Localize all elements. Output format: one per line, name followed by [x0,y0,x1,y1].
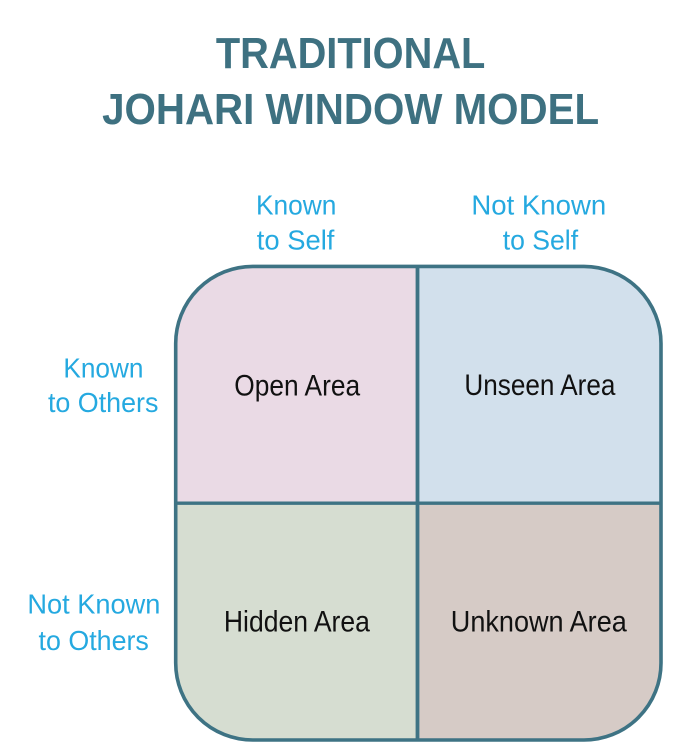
svg-text:JOHARI WINDOW MODEL: JOHARI WINDOW MODEL [102,86,599,134]
svg-text:Not Known: Not Known [27,589,160,620]
svg-text:Unknown Area: Unknown Area [451,606,627,639]
svg-text:Known: Known [63,353,143,384]
svg-text:TRADITIONAL: TRADITIONAL [216,30,486,78]
svg-text:Open Area: Open Area [234,370,360,403]
svg-text:Known: Known [256,190,337,221]
svg-text:Not Known: Not Known [471,190,606,221]
svg-text:to Others: to Others [48,387,159,418]
svg-text:to Self: to Self [257,225,335,256]
svg-text:to Self: to Self [503,225,579,256]
svg-text:to Others: to Others [39,625,149,656]
svg-text:Hidden Area: Hidden Area [224,605,370,638]
svg-text:Unseen Area: Unseen Area [464,369,615,402]
